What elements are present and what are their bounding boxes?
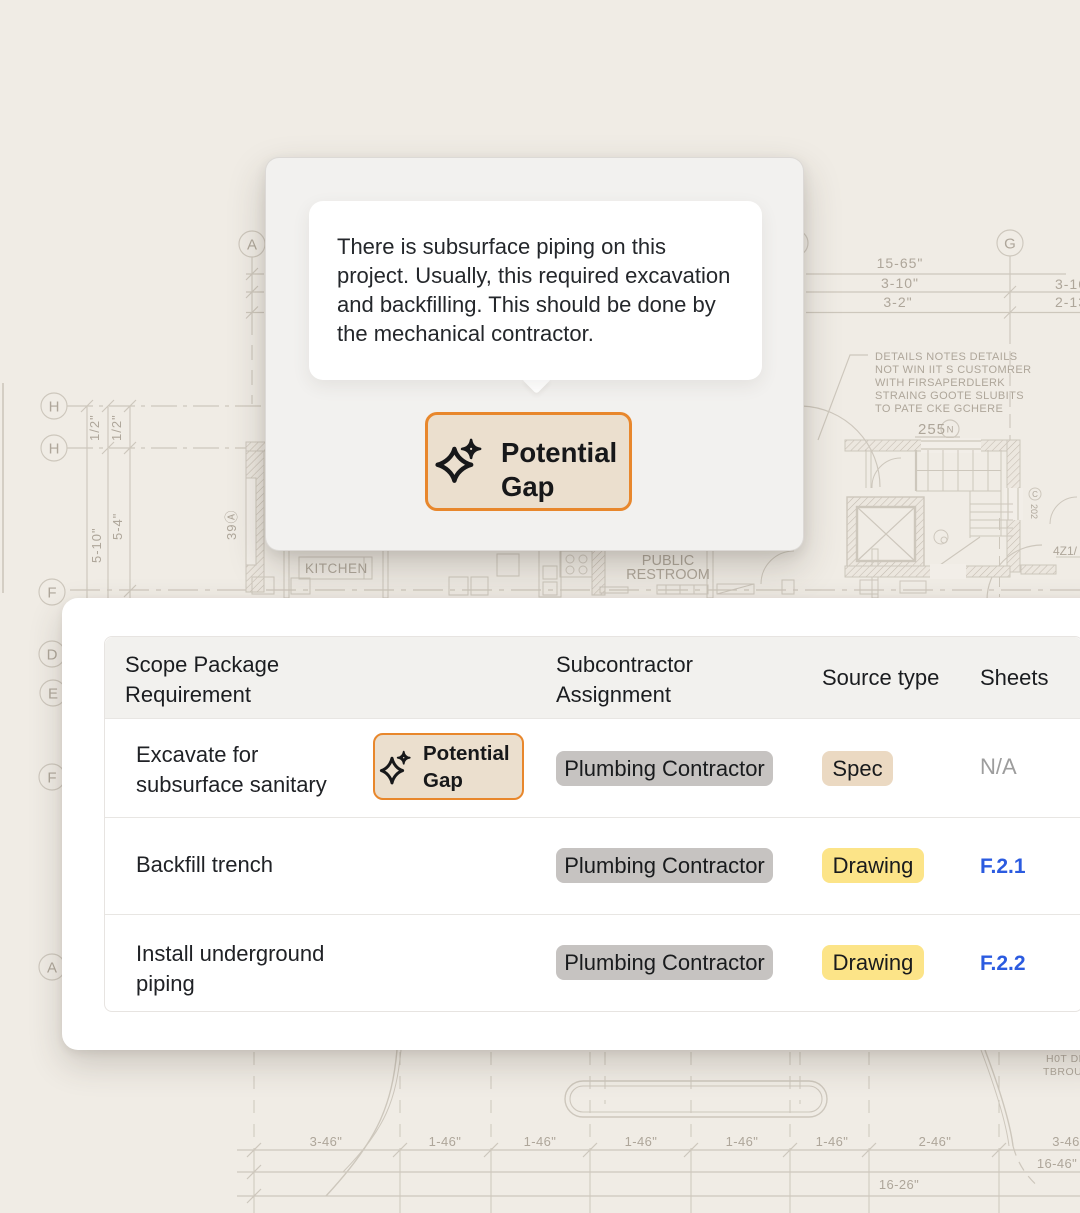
svg-text:H0T DR: H0T DR <box>1046 1053 1080 1065</box>
svg-text:A: A <box>247 237 257 254</box>
svg-text:DETAILS NOTES DETAILS: DETAILS NOTES DETAILS <box>875 351 1017 363</box>
svg-text:255: 255 <box>918 421 946 438</box>
svg-text:G: G <box>1004 236 1016 253</box>
svg-text:1-46": 1-46" <box>429 1134 462 1149</box>
svg-text:3-10": 3-10" <box>881 275 919 291</box>
svg-text:16-46": 16-46" <box>1037 1156 1077 1171</box>
svg-text:2-46": 2-46" <box>919 1134 952 1149</box>
svg-text:H: H <box>49 441 60 458</box>
svg-text:F: F <box>47 770 56 787</box>
svg-text:3-16: 3-16 <box>1055 276 1080 292</box>
svg-text:H: H <box>49 399 60 416</box>
svg-text:1-46": 1-46" <box>625 1134 658 1149</box>
svg-text:1/2": 1/2" <box>87 414 102 441</box>
svg-text:15-65": 15-65" <box>877 255 924 271</box>
svg-text:4Z1/: 4Z1/ <box>1053 544 1078 558</box>
svg-text:NOT WIN IIT S CUSTOMRER: NOT WIN IIT S CUSTOMRER <box>875 364 1032 376</box>
svg-text:2-13: 2-13 <box>1055 294 1080 310</box>
svg-text:TBROUG: TBROUG <box>1043 1066 1080 1078</box>
svg-text:F: F <box>47 585 56 602</box>
svg-text:1-46": 1-46" <box>726 1134 759 1149</box>
svg-text:D: D <box>47 647 58 664</box>
svg-text:3-46": 3-46" <box>310 1134 343 1149</box>
svg-text:1-46": 1-46" <box>816 1134 849 1149</box>
svg-text:C: C <box>1032 490 1038 499</box>
svg-text:TO PATE CKE GCHERE: TO PATE CKE GCHERE <box>875 403 1003 415</box>
svg-text:5-4": 5-4" <box>110 513 125 540</box>
svg-text:3-2": 3-2" <box>883 294 912 310</box>
svg-text:N: N <box>947 425 954 436</box>
svg-text:5-10": 5-10" <box>89 527 104 563</box>
svg-text:WITH FIRSAPERDLERK: WITH FIRSAPERDLERK <box>875 377 1005 389</box>
svg-text:202: 202 <box>1029 504 1039 519</box>
svg-text:A: A <box>47 960 57 977</box>
svg-text:16-26": 16-26" <box>879 1177 919 1192</box>
svg-text:STRAING GOOTE SLUBITS: STRAING GOOTE SLUBITS <box>875 390 1024 402</box>
svg-text:KITCHEN: KITCHEN <box>305 561 368 576</box>
svg-text:39Ⓐ: 39Ⓐ <box>224 510 239 540</box>
svg-text:1-46": 1-46" <box>524 1134 557 1149</box>
svg-text:E: E <box>48 686 58 703</box>
svg-text:3-46: 3-46 <box>1052 1134 1080 1149</box>
svg-text:RESTROOM: RESTROOM <box>626 567 710 583</box>
svg-text:1/2": 1/2" <box>109 414 124 441</box>
